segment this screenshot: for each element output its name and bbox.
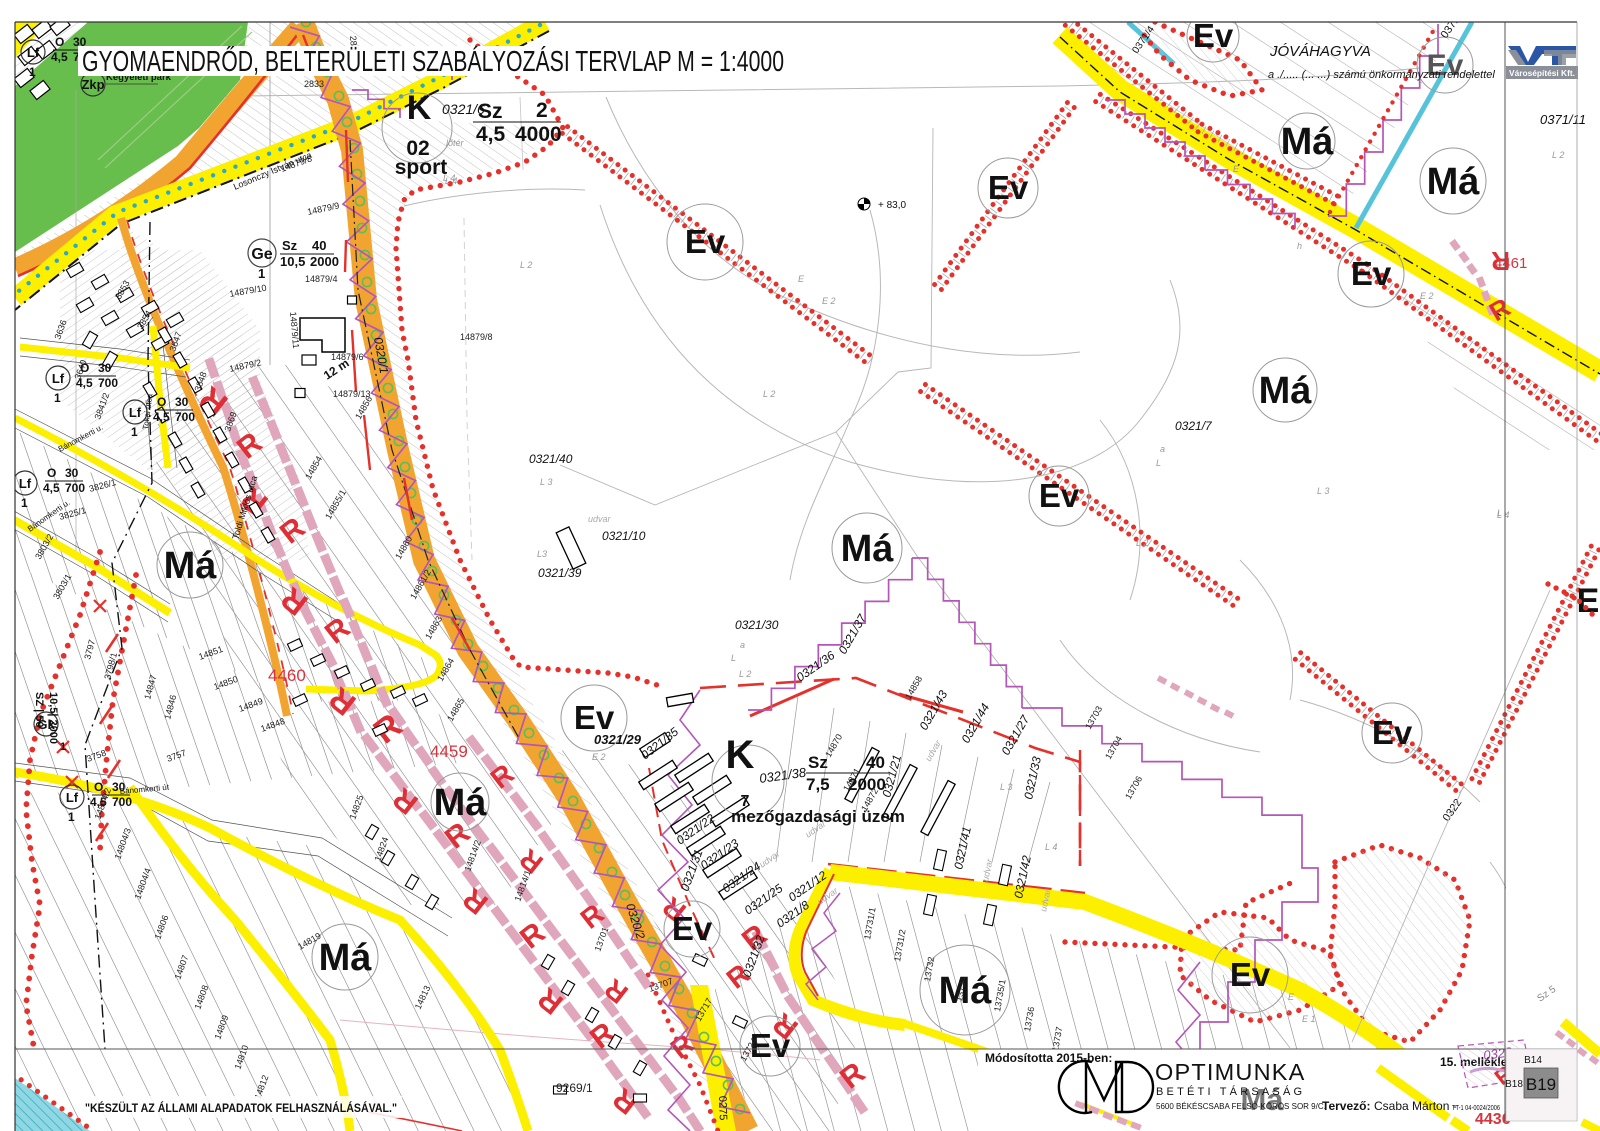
svg-text:a: a: [740, 640, 745, 650]
svg-text:4461: 4461: [1494, 255, 1527, 272]
svg-text:E 1: E 1: [1302, 1014, 1316, 1024]
svg-text:10,5| 2000: 10,5| 2000: [47, 692, 59, 744]
svg-text:Ev: Ev: [672, 910, 713, 947]
svg-text:E 2: E 2: [592, 752, 606, 762]
svg-text:40: 40: [312, 238, 326, 253]
svg-text:0371/11: 0371/11: [1540, 112, 1586, 127]
svg-text:4459: 4459: [430, 742, 468, 761]
svg-text:Ev: Ev: [685, 223, 726, 260]
svg-text:Lf: Lf: [27, 45, 40, 60]
svg-text:L: L: [1156, 458, 1161, 468]
svg-text:0275: 0275: [716, 1096, 729, 1121]
svg-text:O: O: [157, 395, 166, 409]
svg-text:Lf: Lf: [19, 476, 32, 491]
svg-text:2: 2: [536, 99, 548, 122]
svg-text:4000: 4000: [515, 123, 562, 146]
svg-text:L 2: L 2: [763, 389, 775, 399]
svg-text:0321/7: 0321/7: [1175, 419, 1213, 433]
svg-text:BETÉTI TÁRSASÁG: BETÉTI TÁRSASÁG: [1156, 1085, 1305, 1098]
svg-text:Városépítési Kft.: Városépítési Kft.: [1509, 69, 1575, 78]
svg-text:SZ | 50: SZ | 50: [33, 692, 45, 727]
svg-text:4460: 4460: [268, 666, 306, 685]
svg-text:700: 700: [65, 481, 85, 495]
svg-text:Zkp: Zkp: [81, 77, 104, 92]
svg-text:0321/39: 0321/39: [538, 566, 582, 580]
svg-text:h: h: [1297, 241, 1302, 251]
svg-text:E: E: [1288, 992, 1295, 1002]
svg-text:GYOMAENDRŐD, BELTERÜLETI SZABÁ: GYOMAENDRŐD, BELTERÜLETI SZABÁLYOZÁSI TE…: [82, 45, 784, 78]
svg-text:1: 1: [131, 425, 138, 439]
svg-text:4,5: 4,5: [51, 50, 68, 64]
svg-text:O: O: [55, 35, 64, 49]
svg-text:700: 700: [98, 376, 118, 390]
svg-text:Má: Má: [434, 782, 488, 824]
svg-text:0321/10: 0321/10: [602, 529, 646, 543]
svg-text:Má: Má: [1427, 161, 1481, 203]
svg-text:7,5: 7,5: [806, 775, 830, 794]
svg-text:0321/40: 0321/40: [529, 452, 573, 466]
svg-text:udvar: udvar: [588, 514, 612, 524]
svg-text:30: 30: [98, 361, 112, 375]
svg-text:Ev: Ev: [988, 169, 1029, 206]
svg-text:30: 30: [65, 466, 79, 480]
svg-text:40: 40: [866, 753, 885, 772]
svg-text:sport: sport: [395, 156, 448, 179]
svg-text:14879/4: 14879/4: [305, 274, 338, 284]
svg-text:Má: Má: [1259, 370, 1313, 412]
svg-text:L 3: L 3: [540, 477, 552, 487]
svg-text:2833: 2833: [304, 79, 324, 89]
svg-text:Csaba Márton -: Csaba Márton -: [1374, 1099, 1457, 1113]
svg-text:10,5: 10,5: [280, 254, 305, 269]
svg-text:lőtér: lőtér: [446, 138, 465, 148]
svg-text:4,5: 4,5: [476, 123, 506, 146]
svg-text:1: 1: [60, 741, 66, 753]
svg-text:B19: B19: [1526, 1075, 1556, 1094]
svg-text:1: 1: [68, 810, 75, 824]
svg-text:OPTIMUNKA: OPTIMUNKA: [1155, 1059, 1306, 1085]
svg-text:K: K: [726, 733, 755, 777]
svg-text:5600 BÉKÉSCSABA FELSŐ-KÖRÖS: 5600 BÉKÉSCSABA FELSŐ-KÖRÖS SOR 9/C.: [1156, 1102, 1326, 1111]
svg-text:L: L: [731, 653, 736, 663]
svg-text:4,5: 4,5: [43, 481, 60, 495]
svg-text:Má: Má: [164, 545, 218, 587]
svg-text:Má: Má: [841, 528, 895, 570]
svg-text:JÓVÁHAGYVA: JÓVÁHAGYVA: [1269, 43, 1371, 60]
svg-text:a: a: [1160, 444, 1165, 454]
svg-text:L 2: L 2: [1552, 150, 1564, 160]
svg-text:O: O: [47, 466, 56, 480]
svg-text:L 3: L 3: [1000, 782, 1012, 792]
svg-text:E: E: [1233, 164, 1240, 174]
svg-text:700: 700: [112, 795, 132, 809]
svg-text:9269/1: 9269/1: [556, 1081, 593, 1095]
svg-text:30: 30: [175, 395, 189, 409]
svg-text:K: K: [407, 89, 432, 127]
svg-text:1: 1: [54, 391, 61, 405]
svg-text:Ge: Ge: [251, 246, 272, 263]
svg-text:Ev: Ev: [1039, 477, 1080, 514]
svg-text:L 2: L 2: [1136, 538, 1148, 548]
svg-text:+ 83,0: + 83,0: [878, 200, 907, 211]
svg-text:B18: B18: [1505, 1079, 1523, 1090]
svg-text:L3: L3: [537, 549, 547, 559]
svg-text:Má: Má: [319, 937, 373, 979]
svg-text:4,5: 4,5: [153, 410, 170, 424]
svg-text:B14: B14: [1524, 1055, 1542, 1066]
svg-text:700: 700: [175, 410, 195, 424]
svg-text:E: E: [798, 274, 805, 284]
svg-text:E 2: E 2: [822, 296, 836, 306]
svg-text:2000: 2000: [310, 254, 339, 269]
svg-text:1: 1: [258, 266, 265, 281]
svg-text:Ev: Ev: [1351, 255, 1392, 292]
svg-text:Sz: Sz: [478, 100, 503, 123]
svg-text:Lf: Lf: [129, 405, 142, 420]
svg-text:Lf: Lf: [66, 790, 79, 805]
svg-text:Má: Má: [1281, 121, 1335, 163]
svg-text:0321/30: 0321/30: [735, 618, 779, 632]
svg-text:"KÉSZÜLT AZ ÁLLAMI ALAPADATOK: "KÉSZÜLT AZ ÁLLAMI ALAPADATOK FELHASZNÁL…: [85, 1100, 397, 1115]
svg-text:Lf: Lf: [52, 371, 65, 386]
svg-text:L 2: L 2: [739, 669, 751, 679]
svg-text:L 4: L 4: [1045, 842, 1057, 852]
svg-text:Ev: Ev: [1230, 956, 1271, 993]
svg-text:14879/8: 14879/8: [460, 332, 493, 342]
svg-text:Ev: Ev: [1372, 714, 1413, 751]
svg-text:0321/29: 0321/29: [594, 732, 642, 747]
svg-text:a ./..... (... ...) számú önko: a ./..... (... ...) számú önkormányzati …: [1268, 69, 1495, 81]
svg-text:E 2: E 2: [1420, 291, 1434, 301]
svg-text:L 2: L 2: [520, 260, 532, 270]
svg-text:L 3: L 3: [1317, 486, 1329, 496]
svg-text:Módosította 2015-ben:: Módosította 2015-ben:: [985, 1051, 1112, 1065]
svg-text:L 4: L 4: [1497, 510, 1509, 520]
svg-text:Sz: Sz: [282, 238, 298, 253]
svg-text:Ev: Ev: [574, 699, 615, 736]
svg-text:1: 1: [21, 496, 28, 510]
svg-text:1: 1: [29, 65, 36, 79]
svg-text:L 4: L 4: [443, 173, 455, 183]
svg-text:Tervező:: Tervező:: [1322, 1099, 1370, 1113]
